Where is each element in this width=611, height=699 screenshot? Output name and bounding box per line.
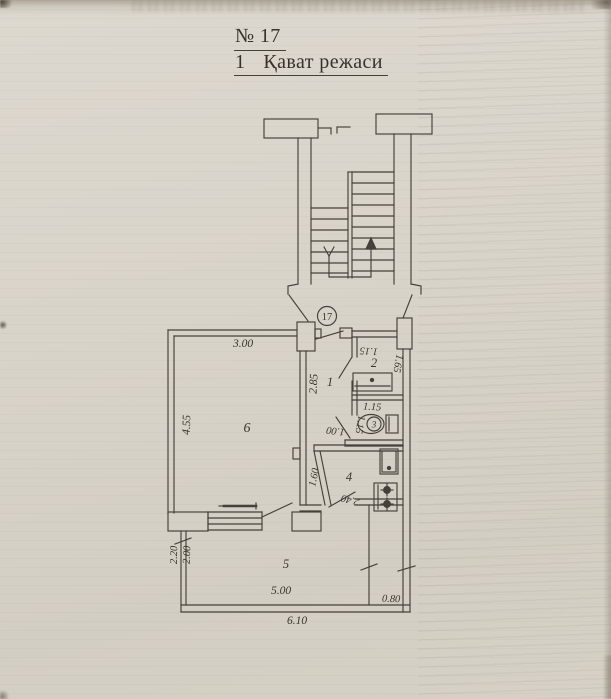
- bathroom-door-leaf: [339, 357, 352, 378]
- dim-loggia-width: 5.00: [271, 585, 291, 597]
- dim-bath-width: 1.15: [359, 344, 378, 356]
- stair-wall-flare-right: [411, 284, 421, 294]
- room-loggia-walls: [175, 505, 415, 612]
- stairs-steps-right-flight: [352, 172, 394, 271]
- hall-wall-notch: [293, 448, 300, 459]
- entry-jamb-pier: [340, 328, 352, 338]
- dim-tick-left: [175, 538, 191, 544]
- room-number-kitchen: 4: [346, 470, 352, 484]
- top-right-pier: [397, 318, 412, 349]
- stairwell-entrance-door: [318, 127, 350, 134]
- stove-icon: [374, 483, 397, 511]
- apartment-entry: [297, 307, 412, 352]
- sink-icon: [380, 449, 398, 474]
- scanned-floor-plan-page: № 17 1Қават режаси: [0, 0, 611, 699]
- floor-plan-drawing: 17 3.00 4.55 6 2.85 1 1.15 2 1.65 1.15 1…: [0, 0, 611, 699]
- vestibule-wall-left: [289, 295, 308, 321]
- stair-wall-cap-left: [264, 119, 318, 138]
- staircase: [264, 114, 432, 321]
- window-pier-left: [168, 512, 208, 531]
- room-number-bathroom: 2: [371, 356, 377, 370]
- window-vent-rod: [219, 503, 256, 509]
- dim-wc-depth: 1.15: [352, 414, 366, 434]
- room-number-wc: 3: [371, 420, 377, 430]
- bathtub-icon: [353, 373, 392, 391]
- dim-strip-width: 0.80: [382, 594, 401, 606]
- room-number-loggia: 5: [283, 557, 289, 571]
- entry-pier: [297, 322, 315, 351]
- window-pier-right: [292, 512, 321, 531]
- dim-kitchen-wall: 1.60: [307, 467, 322, 488]
- dim-kitchen-depth: 2.40: [339, 492, 360, 508]
- entry-pier-notch: [315, 329, 321, 338]
- dim-living-width: 3.00: [232, 338, 253, 350]
- window-icon: [208, 512, 262, 530]
- dim-living-depth: 4.55: [181, 414, 194, 435]
- stairs-up-arrow: [366, 238, 376, 249]
- kitchen-diagonal-wall-inner: [320, 451, 331, 505]
- room-living-window-wall: [168, 503, 321, 531]
- room-number-living: 6: [244, 421, 251, 436]
- dim-wc-width: 1.15: [363, 402, 382, 414]
- entry-door-leaf: [316, 331, 343, 339]
- dim-loggia-depth-outer: 2.20: [169, 545, 180, 564]
- dim-hall-depth: 2.85: [307, 373, 320, 394]
- unit-number-label: 17: [322, 312, 333, 323]
- dim-tick-right: [398, 566, 415, 571]
- stair-wall-flare-left: [288, 284, 298, 294]
- balcony-door-leaf: [262, 503, 292, 517]
- dim-loggia-depth-inner: 2.00: [182, 545, 194, 564]
- room-number-hall: 1: [327, 375, 333, 389]
- stairs-center-divider: [348, 172, 352, 278]
- stair-wall-cap-right: [376, 114, 432, 134]
- vestibule-wall-right: [403, 295, 412, 318]
- dim-total-width: 6.10: [287, 615, 307, 627]
- dim-bath-depth: 1.65: [390, 353, 404, 373]
